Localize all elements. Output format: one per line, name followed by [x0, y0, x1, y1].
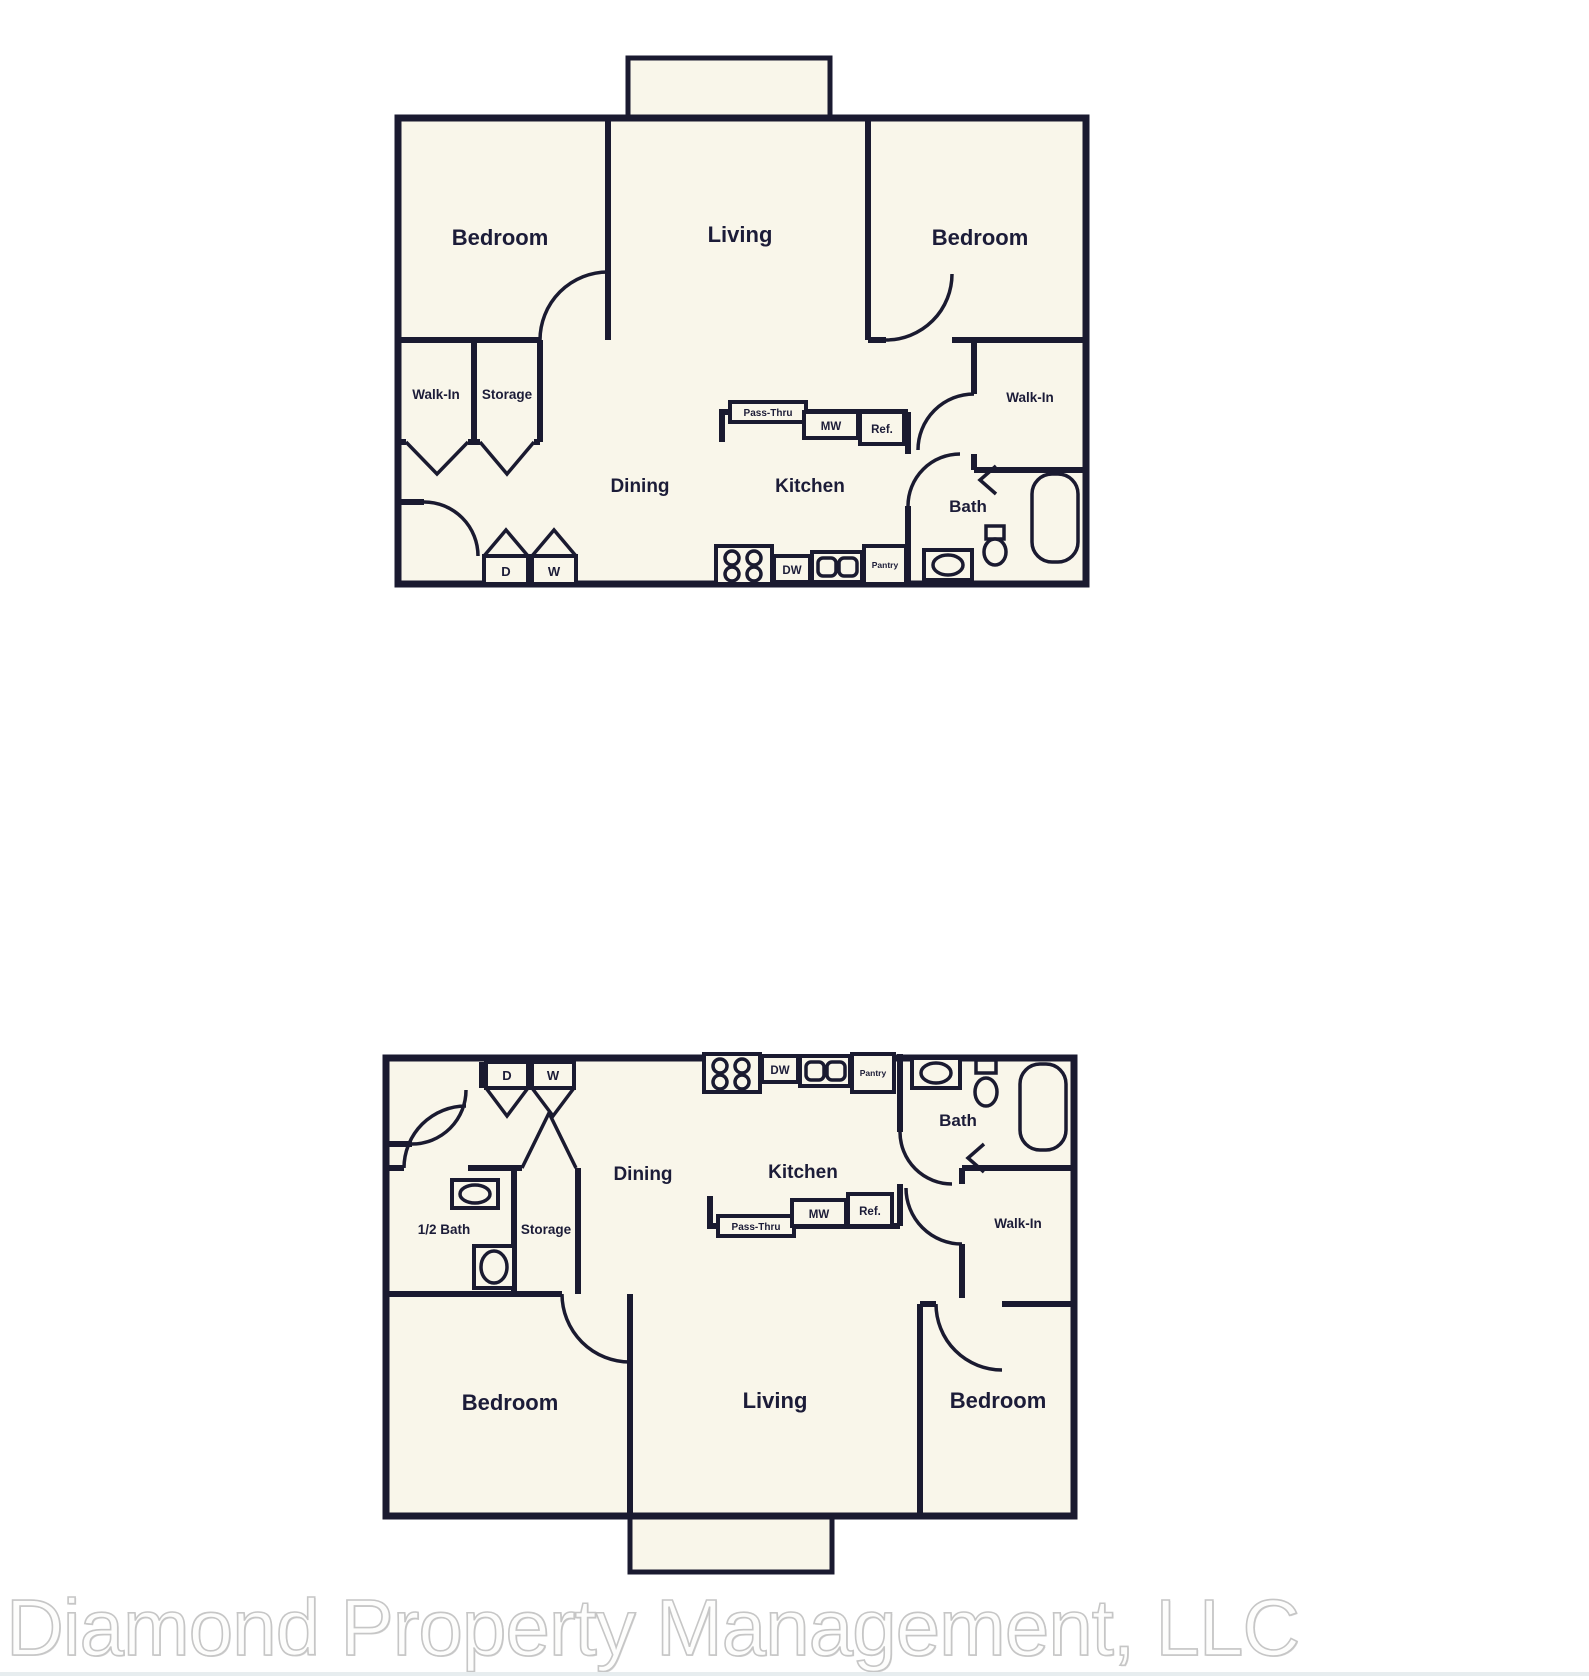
washer-label: W — [548, 564, 561, 579]
pantry-label: Pantry — [860, 1068, 887, 1078]
bath-sink-basin-icon — [460, 1185, 490, 1203]
kitchen-counter: DW Pantry — [716, 546, 906, 584]
bath-sink-basin-icon — [933, 555, 963, 575]
room-label-bedroom-right: Bedroom — [932, 225, 1029, 250]
room-label-bath: Bath — [949, 497, 987, 516]
floor-plan-upper: D W Pass-Thru MW Ref. DW Pantry Bedroom — [390, 50, 1096, 600]
stove-burner-icon — [735, 1059, 749, 1073]
floor-plan-lower: D W DW Pantry Pass-Thru MW Ref. — [378, 958, 1090, 1589]
floor-plan-upper-svg: D W Pass-Thru MW Ref. DW Pantry Bedroom — [390, 50, 1096, 595]
room-label-dining: Dining — [613, 1164, 672, 1185]
bathtub-icon — [1032, 474, 1078, 562]
scan-edge-line — [0, 1672, 1589, 1676]
pass-thru-label: Pass-Thru — [744, 408, 793, 419]
toilet-tank-icon — [986, 526, 1004, 539]
microwave-label: MW — [821, 421, 842, 433]
balcony — [628, 58, 830, 118]
floor-plan-lower-svg: D W DW Pantry Pass-Thru MW Ref. — [378, 958, 1090, 1584]
watermark-text: Diamond Property Management, LLC — [6, 1582, 1299, 1674]
dryer-label: D — [501, 564, 510, 579]
stove-burner-icon — [713, 1075, 727, 1089]
room-label-living: Living — [743, 1388, 808, 1413]
sink-basin-icon — [806, 1062, 824, 1080]
dishwasher-label: DW — [770, 1065, 789, 1077]
dryer-label: D — [502, 1068, 511, 1083]
stove-burner-icon — [735, 1075, 749, 1089]
laundry-area: D W — [486, 1062, 574, 1088]
room-label-kitchen: Kitchen — [768, 1162, 838, 1183]
room-label-half-bath: 1/2 Bath — [418, 1222, 471, 1237]
pantry-label: Pantry — [872, 560, 899, 570]
room-label-bedroom-left: Bedroom — [462, 1390, 559, 1415]
stove-burner-icon — [725, 551, 739, 565]
room-label-living: Living — [708, 222, 773, 247]
room-label-bedroom-left: Bedroom — [452, 225, 549, 250]
bath-sink-basin-icon — [921, 1063, 951, 1083]
stove-burner-icon — [747, 551, 761, 565]
room-label-storage: Storage — [521, 1222, 572, 1237]
toilet-icon — [481, 1251, 507, 1283]
sink-basin-icon — [827, 1062, 845, 1080]
toilet-tank-icon — [976, 1060, 996, 1073]
balcony — [630, 1516, 832, 1572]
pass-thru-label: Pass-Thru — [732, 1222, 781, 1233]
toilet-icon — [984, 539, 1006, 565]
room-label-bedroom-right: Bedroom — [950, 1388, 1047, 1413]
stove-burner-icon — [747, 567, 761, 581]
sink-basin-icon — [818, 558, 836, 576]
room-label-dining: Dining — [610, 476, 669, 497]
sink-basin-icon — [839, 558, 857, 576]
room-label-storage: Storage — [482, 387, 533, 402]
kitchen-counter: DW Pantry — [704, 1054, 894, 1092]
room-label-walk-in-right: Walk-In — [1006, 390, 1054, 405]
laundry-area: D W — [484, 556, 576, 584]
stove-burner-icon — [725, 567, 739, 581]
washer-label: W — [547, 1068, 560, 1083]
room-label-bath: Bath — [939, 1111, 977, 1130]
toilet-icon — [975, 1078, 997, 1106]
room-label-walk-in-left: Walk-In — [412, 387, 460, 402]
dishwasher-label: DW — [782, 565, 801, 577]
bathtub-icon — [1020, 1064, 1066, 1150]
room-label-walk-in: Walk-In — [994, 1216, 1042, 1231]
refrigerator-label: Ref. — [871, 424, 893, 436]
refrigerator-label: Ref. — [859, 1206, 881, 1218]
microwave-label: MW — [809, 1209, 830, 1221]
stove-burner-icon — [713, 1059, 727, 1073]
room-label-kitchen: Kitchen — [775, 476, 845, 497]
